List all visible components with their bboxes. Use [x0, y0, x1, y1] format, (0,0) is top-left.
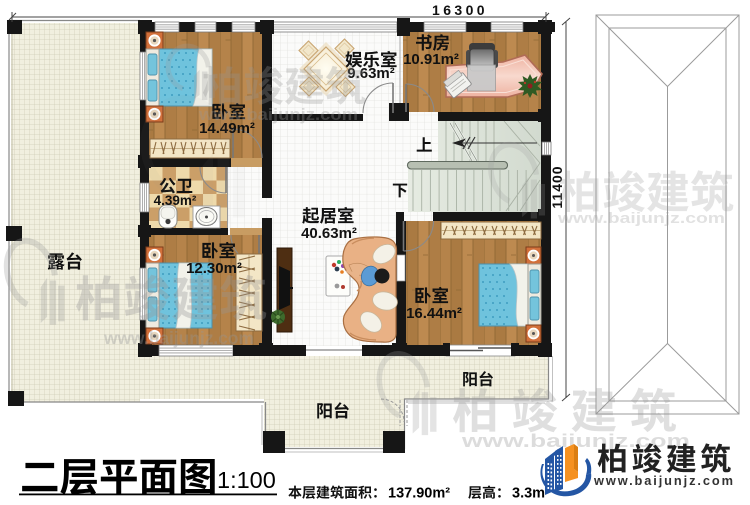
svg-text:137.90m²: 137.90m²	[388, 486, 450, 502]
svg-text:1:100: 1:100	[217, 467, 276, 493]
svg-text:www.baijunjz.com: www.baijunjz.com	[593, 473, 735, 488]
svg-text:16.44m²: 16.44m²	[406, 305, 462, 322]
svg-text:12.30m²: 12.30m²	[186, 260, 242, 277]
svg-text:16300: 16300	[432, 2, 488, 18]
svg-text:www.baijunjz.com: www.baijunjz.com	[103, 328, 254, 348]
svg-text:10.91m²: 10.91m²	[403, 51, 459, 68]
svg-text:www.baijunjz.com: www.baijunjz.com	[557, 210, 725, 227]
svg-text:40.63m²: 40.63m²	[301, 225, 357, 242]
svg-text:3.3m: 3.3m	[512, 486, 545, 502]
